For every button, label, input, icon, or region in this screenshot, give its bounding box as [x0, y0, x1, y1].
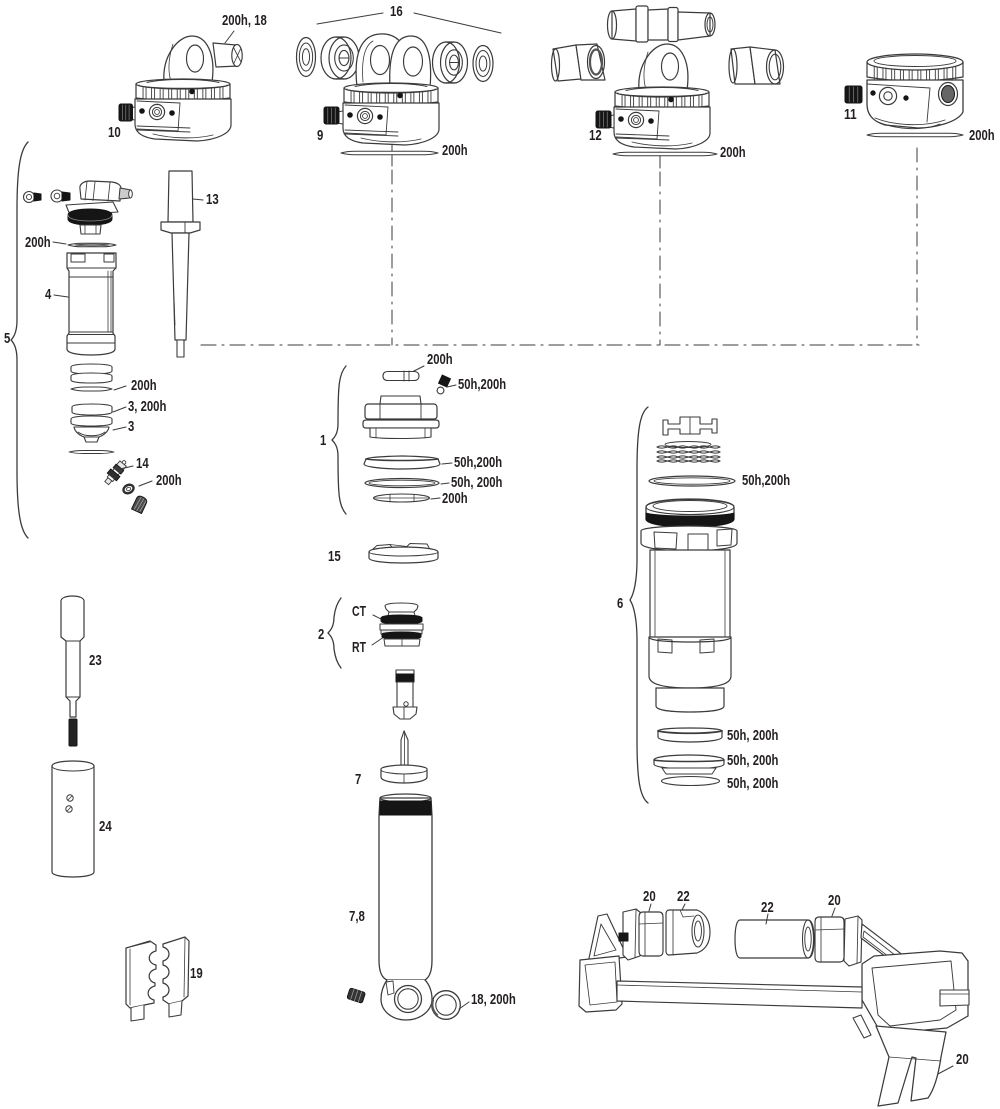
svg-text:15: 15 [328, 549, 341, 565]
svg-text:200h: 200h [25, 235, 51, 251]
svg-text:CT: CT [352, 604, 366, 620]
svg-text:RT: RT [352, 640, 366, 656]
svg-text:14: 14 [136, 456, 149, 472]
svg-text:22: 22 [677, 889, 690, 905]
svg-text:23: 23 [89, 653, 102, 669]
svg-text:50h, 200h: 50h, 200h [451, 475, 502, 491]
svg-text:10: 10 [108, 125, 121, 141]
svg-text:4: 4 [45, 287, 52, 303]
svg-text:200h: 200h [442, 143, 468, 159]
svg-text:2: 2 [318, 627, 324, 643]
svg-text:12: 12 [589, 128, 602, 144]
svg-text:50h, 200h: 50h, 200h [727, 728, 778, 744]
svg-text:18, 200h: 18, 200h [471, 992, 516, 1008]
svg-text:5: 5 [4, 331, 10, 347]
svg-text:7: 7 [355, 772, 361, 788]
svg-text:50h,200h: 50h,200h [742, 473, 790, 489]
svg-text:200h: 200h [442, 491, 468, 507]
svg-text:20: 20 [828, 893, 841, 909]
svg-text:13: 13 [206, 192, 219, 208]
svg-text:11: 11 [844, 107, 857, 123]
svg-text:200h: 200h [131, 378, 157, 394]
svg-text:22: 22 [761, 900, 774, 916]
svg-text:16: 16 [390, 4, 403, 20]
svg-text:20: 20 [956, 1052, 969, 1068]
svg-text:200h: 200h [720, 145, 746, 161]
svg-text:3: 3 [128, 419, 134, 435]
svg-text:20: 20 [643, 889, 656, 905]
svg-text:50h,200h: 50h,200h [458, 377, 506, 393]
svg-text:200h: 200h [427, 352, 453, 368]
svg-text:50h,200h: 50h,200h [454, 455, 502, 471]
svg-text:1: 1 [320, 433, 326, 449]
svg-text:9: 9 [317, 128, 323, 144]
svg-text:24: 24 [99, 819, 112, 835]
svg-text:200h, 18: 200h, 18 [222, 13, 267, 29]
svg-text:50h, 200h: 50h, 200h [727, 776, 778, 792]
svg-text:200h: 200h [156, 473, 182, 489]
svg-text:50h, 200h: 50h, 200h [727, 753, 778, 769]
svg-text:7,8: 7,8 [349, 909, 365, 925]
svg-text:6: 6 [617, 596, 623, 612]
svg-text:3, 200h: 3, 200h [128, 399, 166, 415]
svg-text:19: 19 [190, 966, 203, 982]
svg-text:200h: 200h [969, 128, 995, 144]
